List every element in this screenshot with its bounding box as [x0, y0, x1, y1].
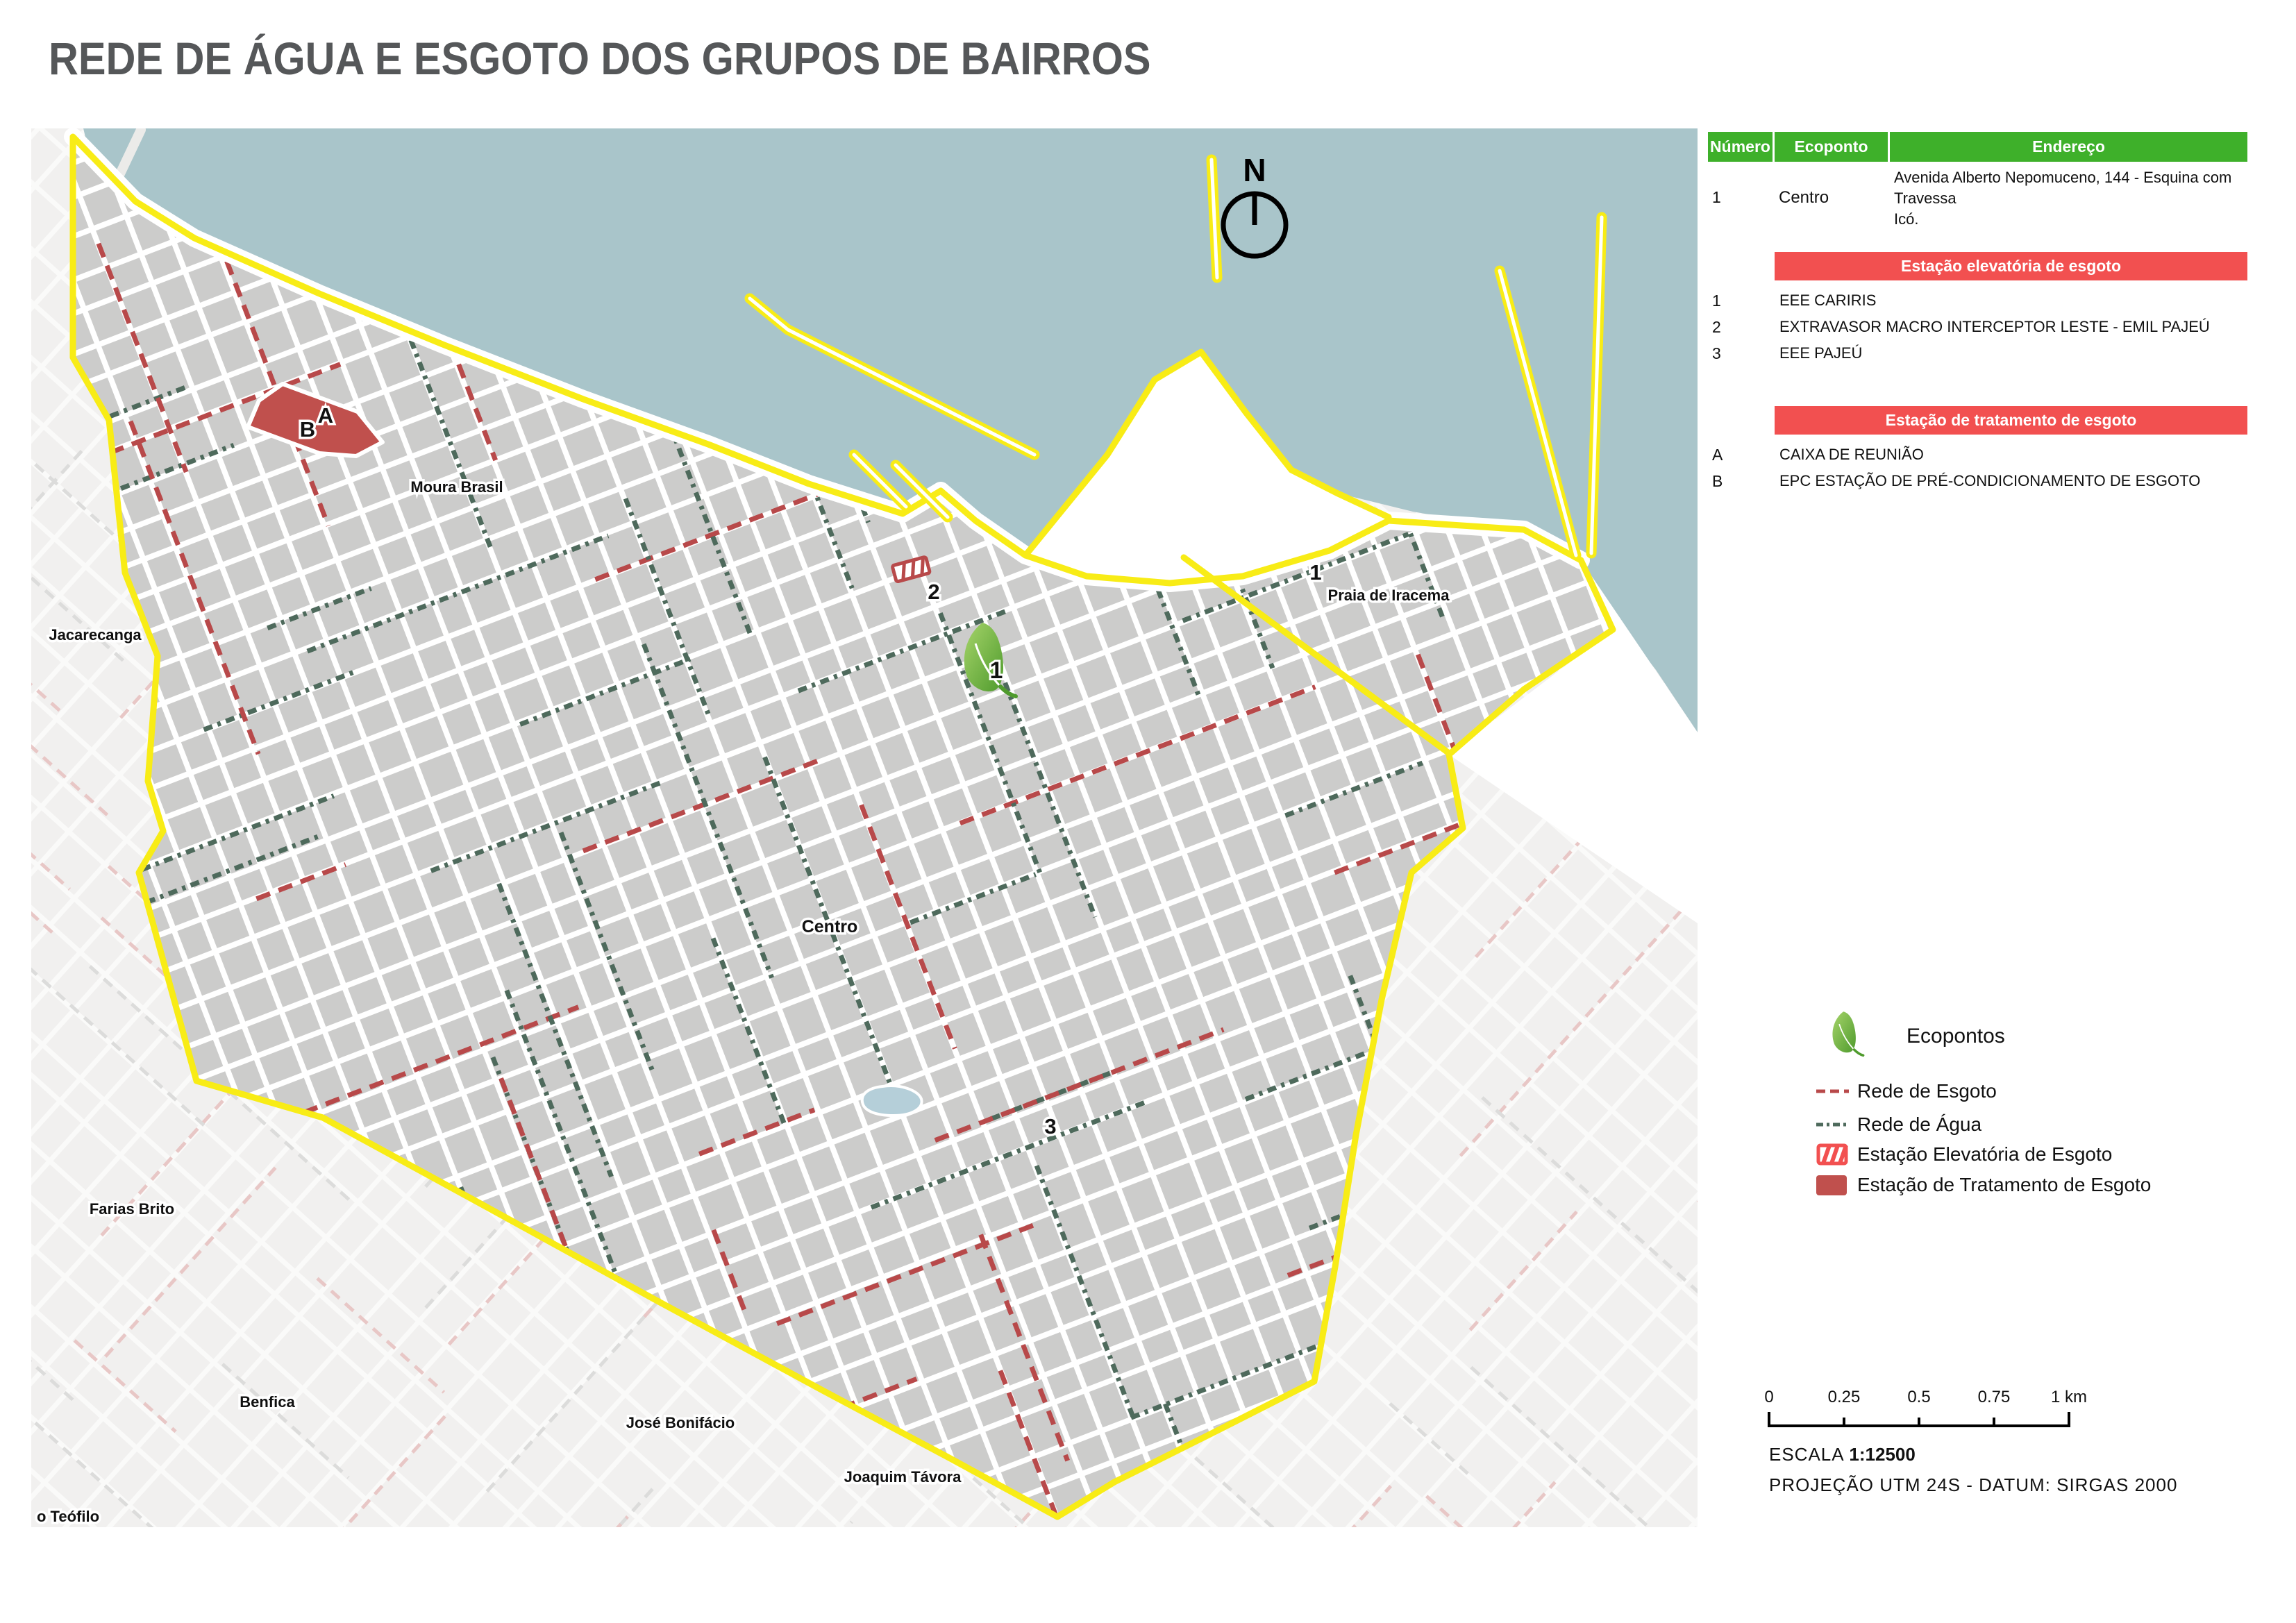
water-line-icon — [1816, 1121, 1849, 1128]
col-numero: Número — [1708, 132, 1773, 162]
map-canvas: B A 2 1 1 3 N Moura — [31, 128, 1698, 1527]
scale-bar: 0 0.25 0.5 0.75 1 km — [1763, 1386, 2125, 1434]
legend-item-agua: Rede de Água — [1816, 1112, 1981, 1137]
solid-box-icon — [1816, 1175, 1849, 1195]
label-praia-de-iracema: Praia de Iracema — [1328, 587, 1450, 604]
label-joaquim-tavora: Joaquim Távora — [844, 1468, 962, 1486]
legend-ecopontos: Ecopontos — [1830, 998, 2005, 1070]
elevatoria-table: Estação elevatória de esgoto 1 EEE CARIR… — [1708, 252, 2247, 367]
page-title: REDE DE ÁGUA E ESGOTO DOS GRUPOS DE BAIR… — [49, 32, 1151, 85]
svg-text:0.25: 0.25 — [1828, 1388, 1861, 1406]
north-label: N — [1243, 152, 1266, 188]
label-farias-brito: Farias Brito — [90, 1200, 174, 1218]
cell-numero: 1 — [1708, 162, 1777, 230]
page: REDE DE ÁGUA E ESGOTO DOS GRUPOS DE BAIR… — [0, 0, 2296, 1623]
tratamento-table-header: Estação de tratamento de esgoto — [1708, 406, 2247, 435]
ecoponto-table: Número Ecoponto Endereço 1 Centro Avenid… — [1708, 132, 2247, 230]
marker-ecoponto-1: 1 — [990, 657, 1003, 684]
projection-text: PROJEÇÃO UTM 24S - DATUM: SIRGAS 2000 — [1769, 1474, 2177, 1496]
legend-item-elevatoria: Estação Elevatória de Esgoto — [1816, 1142, 2112, 1167]
legend-ecopontos-label: Ecopontos — [1907, 1025, 2005, 1048]
marker-eee-2: 2 — [928, 580, 939, 604]
label-centro: Centro — [802, 917, 858, 936]
col-ecoponto: Ecoponto — [1775, 132, 1888, 162]
svg-text:0: 0 — [1764, 1388, 1773, 1406]
label-jacarecanga: Jacarecanga — [49, 626, 142, 644]
marker-eee-1: 1 — [1309, 560, 1321, 585]
tratamento-title: Estação de tratamento de esgoto — [1775, 406, 2247, 435]
marker-treatment-b: B — [300, 417, 315, 442]
legend-item-esgoto: Rede de Esgoto — [1816, 1079, 1997, 1104]
sidebar: Número Ecoponto Endereço 1 Centro Avenid… — [1702, 0, 2296, 1623]
hatched-box-icon — [1816, 1143, 1849, 1166]
table-row: A CAIXA DE REUNIÃO — [1708, 442, 2247, 468]
col-endereco: Endereço — [1890, 132, 2247, 162]
table-row: 1 Centro Avenida Alberto Nepomuceno, 144… — [1708, 162, 2247, 230]
table-row: 1 EEE CARIRIS — [1708, 287, 2247, 314]
label-moura-brasil: Moura Brasil — [410, 478, 503, 496]
cell-endereco: Avenida Alberto Nepomuceno, 144 - Esquin… — [1894, 162, 2247, 230]
table-row: 3 EEE PAJEÚ — [1708, 340, 2247, 367]
label-benfica: Benfica — [240, 1393, 295, 1411]
svg-text:1 km: 1 km — [2051, 1388, 2087, 1406]
ecoponto-table-header: Número Ecoponto Endereço — [1708, 132, 2247, 162]
marker-treatment-a: A — [318, 403, 333, 428]
marker-eee-3: 3 — [1044, 1114, 1056, 1138]
svg-text:0.75: 0.75 — [1978, 1388, 2011, 1406]
label-teofilo: o Teófilo — [37, 1508, 99, 1525]
scale-text: ESCALA 1:12500 — [1769, 1444, 1916, 1465]
label-jose-bonifacio: José Bonifácio — [626, 1414, 735, 1431]
svg-text:0.5: 0.5 — [1907, 1388, 1930, 1406]
map-svg: B A 2 1 1 3 N Moura — [31, 128, 1698, 1527]
legend-item-tratamento: Estação de Tratamento de Esgoto — [1816, 1172, 2151, 1197]
tratamento-table: Estação de tratamento de esgoto A CAIXA … — [1708, 406, 2247, 494]
cell-ecoponto: Centro — [1779, 162, 1892, 230]
elevatoria-title: Estação elevatória de esgoto — [1775, 252, 2247, 280]
lagoon — [862, 1086, 922, 1116]
table-row: 2 EXTRAVASOR MACRO INTERCEPTOR LESTE - E… — [1708, 314, 2247, 340]
elevatoria-table-header: Estação elevatória de esgoto — [1708, 252, 2247, 280]
sewage-line-icon — [1816, 1088, 1849, 1095]
table-row: B EPC ESTAÇÃO DE PRÉ-CONDICIONAMENTO DE … — [1708, 468, 2247, 494]
leaf-icon — [1830, 998, 1865, 1070]
